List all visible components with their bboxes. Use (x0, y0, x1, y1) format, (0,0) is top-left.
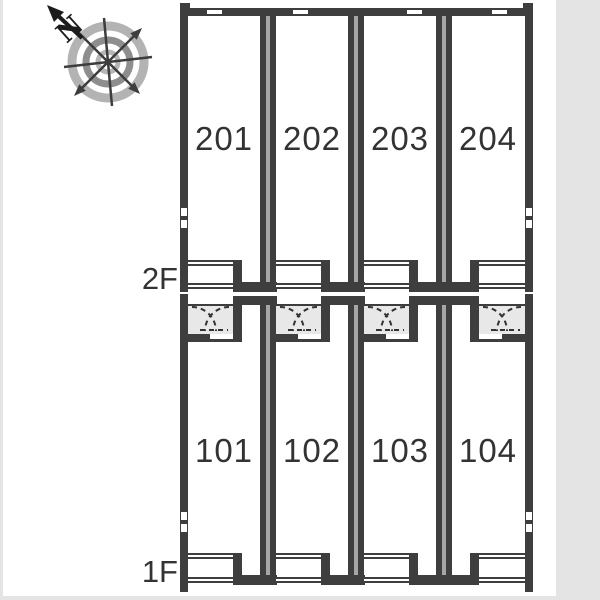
window-opening (407, 10, 422, 14)
floor-label-1f: 1F (126, 556, 178, 587)
window-opening (526, 220, 532, 228)
window-opening (181, 208, 187, 216)
balcony-railing (188, 577, 233, 583)
porch-bottom-wall (364, 334, 386, 342)
door-threshold (210, 339, 233, 342)
compass-rose-icon: N (38, 2, 178, 122)
floor-label-2f: 2F (126, 263, 178, 294)
divider-wall (436, 16, 452, 292)
left-wall (180, 294, 188, 592)
divider-wall (260, 16, 276, 292)
porch-bottom-wall (502, 334, 525, 342)
entry-alcove-wall (409, 575, 479, 585)
window-opening (492, 10, 507, 14)
top-wall (180, 8, 533, 16)
porch-bottom-wall (188, 334, 210, 342)
entry-alcove-wall (321, 575, 365, 585)
floor-plan-canvas: N 201 202 203 204 101 102 103 104 2F 1F (0, 0, 600, 600)
unit-label-101: 101 (188, 433, 260, 469)
door-threshold (298, 339, 321, 342)
page-margin-left (0, 0, 3, 600)
sliding-door-line (276, 553, 321, 559)
window-opening (293, 10, 308, 14)
unit-label-104: 104 (452, 433, 524, 469)
unit-label-204: 204 (452, 121, 524, 157)
window-opening (181, 524, 187, 532)
door-threshold (479, 339, 502, 342)
unit-label-201: 201 (188, 121, 260, 157)
divider-wall (436, 305, 452, 585)
step-wall (409, 305, 418, 342)
divider-wall (260, 305, 276, 585)
entrance-porch (364, 306, 409, 334)
window-opening (526, 208, 532, 216)
window-opening (181, 220, 187, 228)
unit-label-202: 202 (276, 121, 348, 157)
right-wall (525, 16, 533, 292)
entrance-porch (479, 306, 525, 334)
unit-label-103: 103 (364, 433, 436, 469)
porch-cap-wall (321, 296, 365, 305)
sliding-door-line (364, 553, 409, 559)
step-wall (470, 305, 479, 342)
window-opening (181, 512, 187, 520)
porch-cap-wall (233, 296, 277, 305)
window-opening (207, 10, 222, 14)
sliding-door-line (188, 260, 233, 266)
sliding-door-line (364, 260, 409, 266)
balcony-railing (479, 283, 525, 289)
balcony-railing (276, 283, 321, 289)
sliding-door-line (276, 260, 321, 266)
balcony-railing (479, 577, 525, 583)
window-opening (526, 524, 532, 532)
balcony-railing (364, 283, 409, 289)
entry-alcove-wall (409, 282, 479, 292)
unit-label-102: 102 (276, 433, 348, 469)
sliding-door-line (479, 553, 525, 559)
step-wall (321, 305, 330, 342)
divider-wall (348, 305, 364, 585)
left-wall (180, 16, 188, 292)
door-threshold (386, 339, 409, 342)
page-margin-bottom (0, 596, 600, 600)
north-arrow-icon: N (47, 5, 90, 49)
entry-alcove-wall (321, 282, 365, 292)
balcony-railing (276, 577, 321, 583)
balcony-railing (364, 577, 409, 583)
window-opening (526, 512, 532, 520)
porch-cap-wall (409, 296, 479, 305)
entrance-porch (188, 306, 233, 334)
balcony-railing (188, 283, 233, 289)
divider-wall (348, 16, 364, 292)
porch-bottom-wall (276, 334, 298, 342)
sliding-door-line (479, 260, 525, 266)
unit-label-203: 203 (364, 121, 436, 157)
right-wall (525, 294, 533, 592)
sliding-door-line (188, 553, 233, 559)
page-margin-right (556, 0, 600, 600)
entry-alcove-wall (233, 575, 277, 585)
entrance-porch (276, 306, 321, 334)
entry-alcove-wall (233, 282, 277, 292)
step-wall (233, 305, 242, 342)
